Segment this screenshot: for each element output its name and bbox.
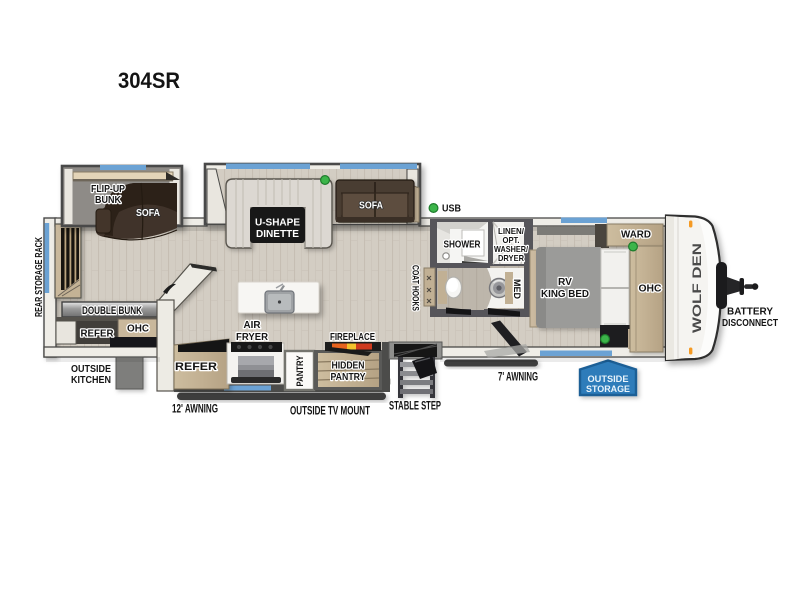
svg-text:OHC: OHC	[127, 324, 149, 335]
svg-text:DINETTE: DINETTE	[256, 228, 299, 240]
svg-text:FRYER: FRYER	[236, 331, 268, 343]
svg-text:BATTERY: BATTERY	[727, 306, 773, 318]
svg-text:KITCHEN: KITCHEN	[71, 374, 111, 386]
svg-text:12' AWNING: 12' AWNING	[172, 404, 218, 416]
svg-text:DRYER: DRYER	[498, 253, 524, 263]
svg-text:PANTRY: PANTRY	[295, 355, 306, 387]
svg-text:STABLE STEP: STABLE STEP	[389, 401, 441, 413]
svg-text:7' AWNING: 7' AWNING	[498, 372, 538, 384]
svg-text:AIR: AIR	[244, 319, 261, 331]
svg-text:RV: RV	[558, 276, 572, 288]
svg-text:OUTSIDE TV MOUNT: OUTSIDE TV MOUNT	[290, 406, 370, 418]
svg-text:REFER: REFER	[175, 361, 217, 373]
svg-text:MED: MED	[512, 279, 522, 300]
svg-text:OHC: OHC	[639, 283, 662, 295]
svg-text:OUTSIDE: OUTSIDE	[588, 374, 629, 384]
svg-text:REFER: REFER	[81, 329, 115, 340]
svg-text:SOFA: SOFA	[136, 208, 160, 219]
svg-text:STORAGE: STORAGE	[586, 384, 630, 394]
svg-text:304SR: 304SR	[118, 68, 180, 93]
svg-text:DISCONNECT: DISCONNECT	[722, 317, 778, 329]
svg-text:BUNK: BUNK	[95, 194, 121, 206]
svg-text:WARD: WARD	[621, 229, 651, 241]
svg-text:U-SHAPE: U-SHAPE	[255, 217, 300, 229]
svg-text:FIREPLACE: FIREPLACE	[330, 331, 375, 343]
svg-text:DOUBLE BUNK: DOUBLE BUNK	[82, 305, 142, 317]
svg-text:SHOWER: SHOWER	[444, 239, 481, 251]
svg-text:HIDDEN: HIDDEN	[332, 360, 365, 372]
svg-text:REAR STORAGE RACK: REAR STORAGE RACK	[34, 236, 45, 317]
svg-text:PANTRY: PANTRY	[331, 371, 366, 383]
svg-text:WOLF DEN: WOLF DEN	[690, 243, 704, 333]
svg-text:KING BED: KING BED	[541, 288, 589, 300]
svg-text:USB: USB	[442, 204, 461, 215]
svg-text:SOFA: SOFA	[359, 201, 383, 212]
svg-text:COAT HOOKS: COAT HOOKS	[410, 265, 421, 311]
